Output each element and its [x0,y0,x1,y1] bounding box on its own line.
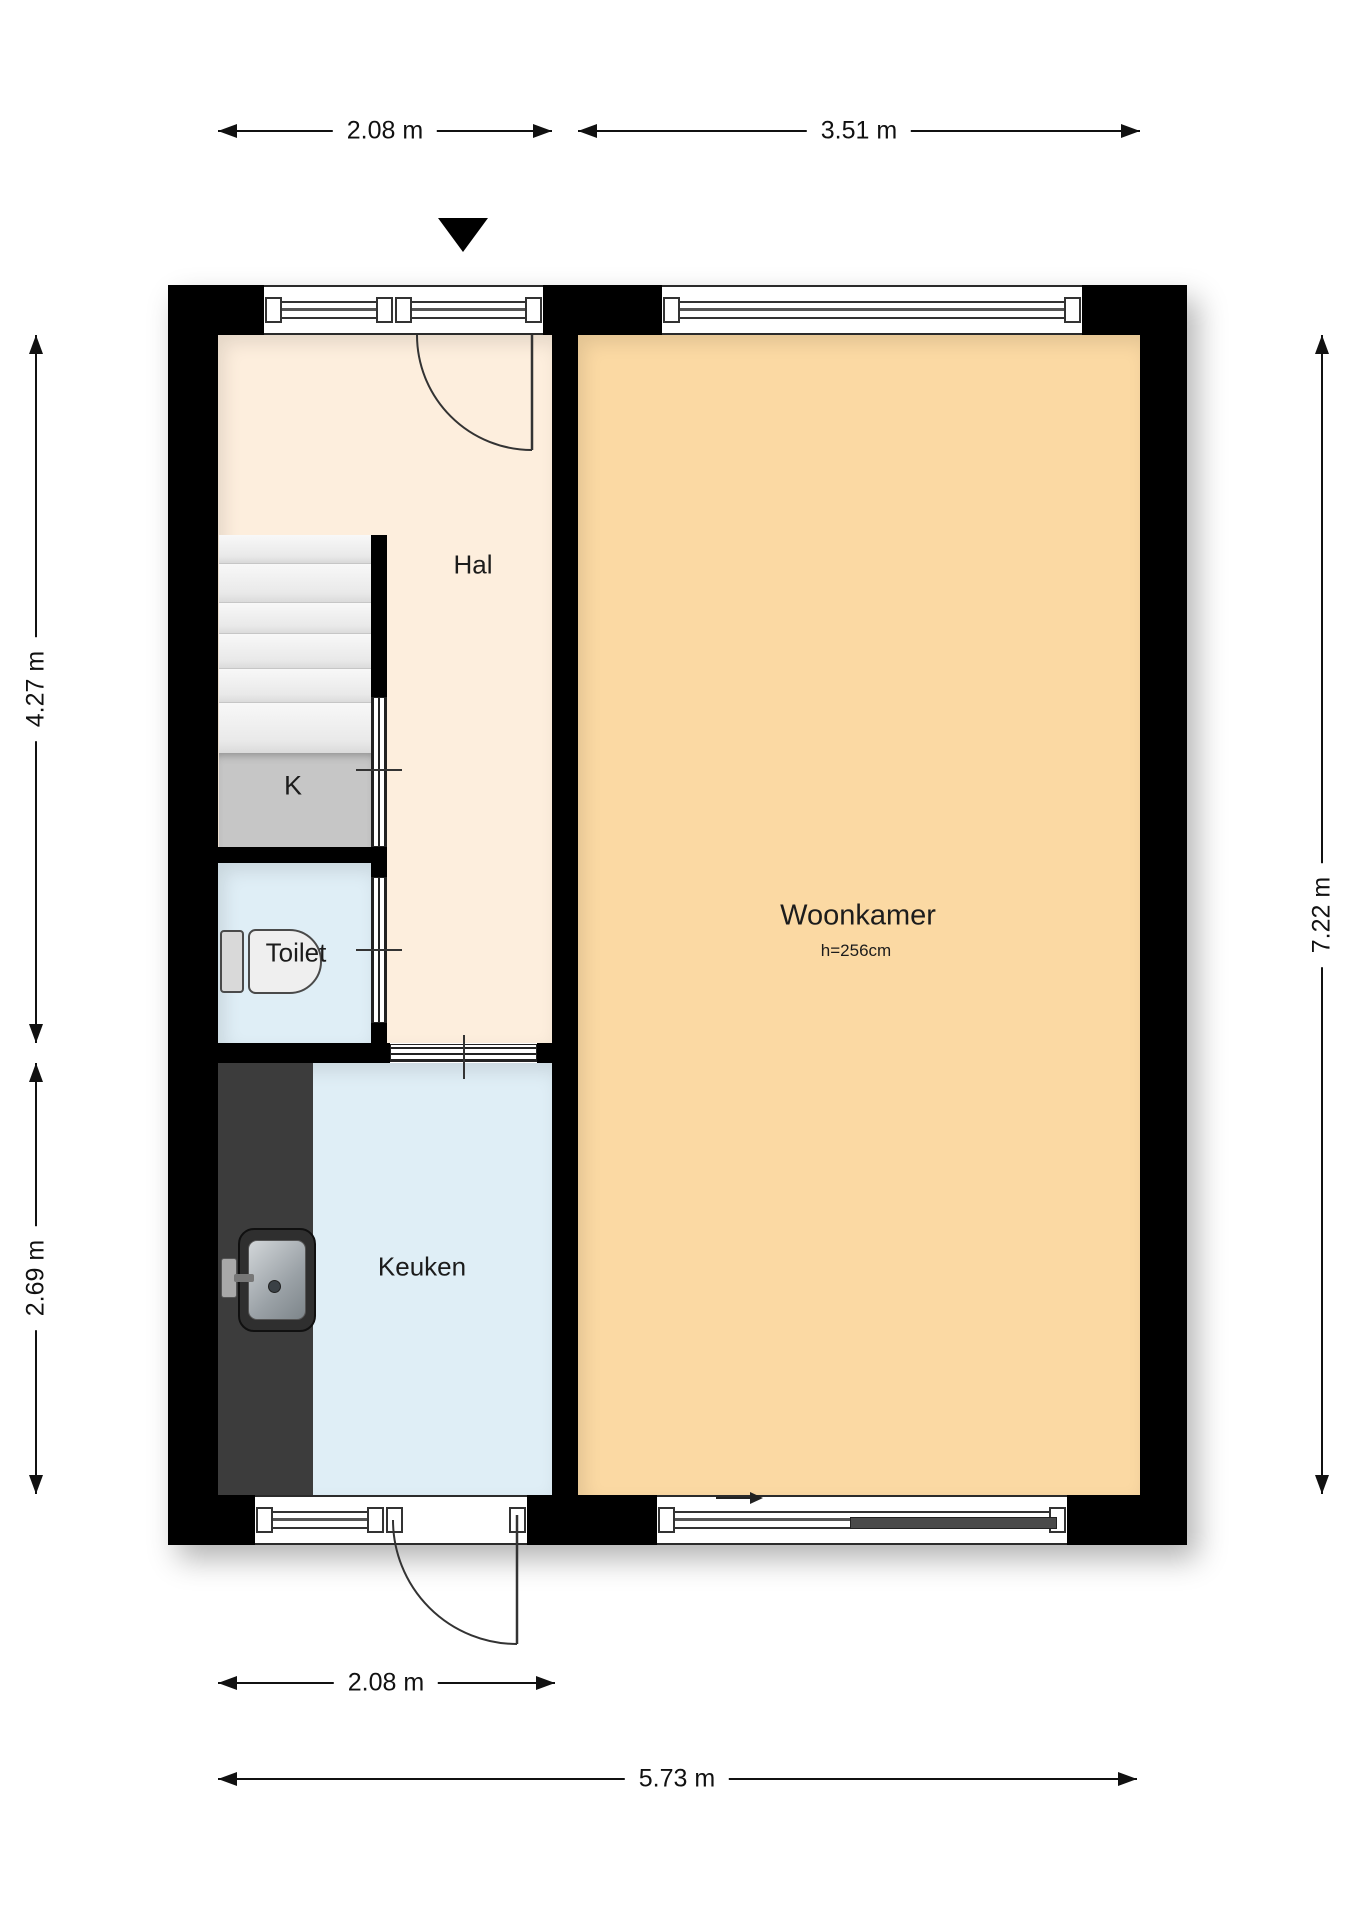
window-frame-cap [256,1507,273,1533]
door-tick-toilet [356,949,402,951]
sink-faucet-spout [234,1274,254,1282]
entrance-marker-icon [438,218,488,252]
wall-kitchen-door-stub [537,1043,552,1063]
window-living-top [662,285,1082,335]
stair-tread [219,702,371,754]
window-glazing [272,301,386,319]
stair-tread [219,668,371,703]
wall-bottom-pier [527,1495,657,1545]
window-frame-cap [367,1507,384,1533]
dimension-label-bottom-kitchen: 2.08 m [334,1669,438,1698]
door-glazing [402,301,535,319]
wall-top-corner-right [1082,285,1187,335]
wall-right [1140,285,1187,1545]
entry-door-panel [394,285,543,335]
room-label-living-height: h=256cm [821,941,891,961]
sliding-door-panel [850,1517,1057,1529]
wall-closet-toilet [218,847,387,863]
sink-drain [268,1280,281,1293]
window-glazing [670,301,1074,319]
window-frame-cap [658,1507,675,1533]
door-frame-cap [386,1507,403,1533]
wall-left [168,285,218,1545]
toilet-tank-icon [220,930,244,993]
dimension-label-left-upper: 4.27 m [22,637,51,741]
wall-toilet-kitchen [218,1043,390,1063]
room-label-kitchen: Keuken [378,1252,466,1283]
stair-tread [219,563,371,603]
dimension-label-left-lower: 2.69 m [22,1226,51,1330]
staircase-icon [219,535,371,753]
window-frame-cap [265,297,282,323]
window-hal-top [264,285,394,335]
wall-toilet-stub-top [371,863,387,877]
window-kitchen-bottom [255,1495,385,1545]
kitchen-exterior-door-panel [385,1495,527,1545]
door-tick-hal-kitchen [463,1035,465,1079]
sliding-door-arrow [716,1497,750,1499]
dimension-label-bottom-total: 5.73 m [625,1765,729,1794]
dimension-label-top-hall: 2.08 m [333,117,437,146]
room-label-living: Woonkamer [780,900,936,933]
door-tick-closet [356,769,402,771]
door-frame-cap [525,297,542,323]
wall-toilet-stub-bottom [371,1023,387,1043]
room-label-toilet: Toilet [266,938,327,969]
wall-bottom-corner-left [168,1495,255,1545]
wall-stairs-side [371,535,387,697]
stair-tread [219,633,371,669]
door-frame-cap [395,297,412,323]
floorplan-canvas: Hal K Toilet Keuken Woonkamer h=256cm 2.… [0,0,1358,1920]
window-glazing [263,1511,377,1529]
door-closet [371,697,387,847]
window-frame-cap [663,297,680,323]
door-frame-cap [509,1507,526,1533]
sliding-door-living [657,1495,1067,1545]
wall-bottom-corner-right [1067,1495,1187,1545]
stair-tread [219,602,371,634]
wall-top-corner-left [168,285,264,335]
window-frame-cap [376,297,393,323]
room-label-closet: K [284,771,302,802]
dimension-label-top-living: 3.51 m [807,117,911,146]
wall-hal-living-divider [552,335,578,1495]
wall-top-pier [543,285,662,335]
room-label-hal: Hal [453,550,492,581]
window-frame-cap [1064,297,1081,323]
stair-tread [219,535,371,563]
sliding-door-arrow-head [750,1492,763,1504]
dimension-label-right: 7.22 m [1308,863,1337,967]
